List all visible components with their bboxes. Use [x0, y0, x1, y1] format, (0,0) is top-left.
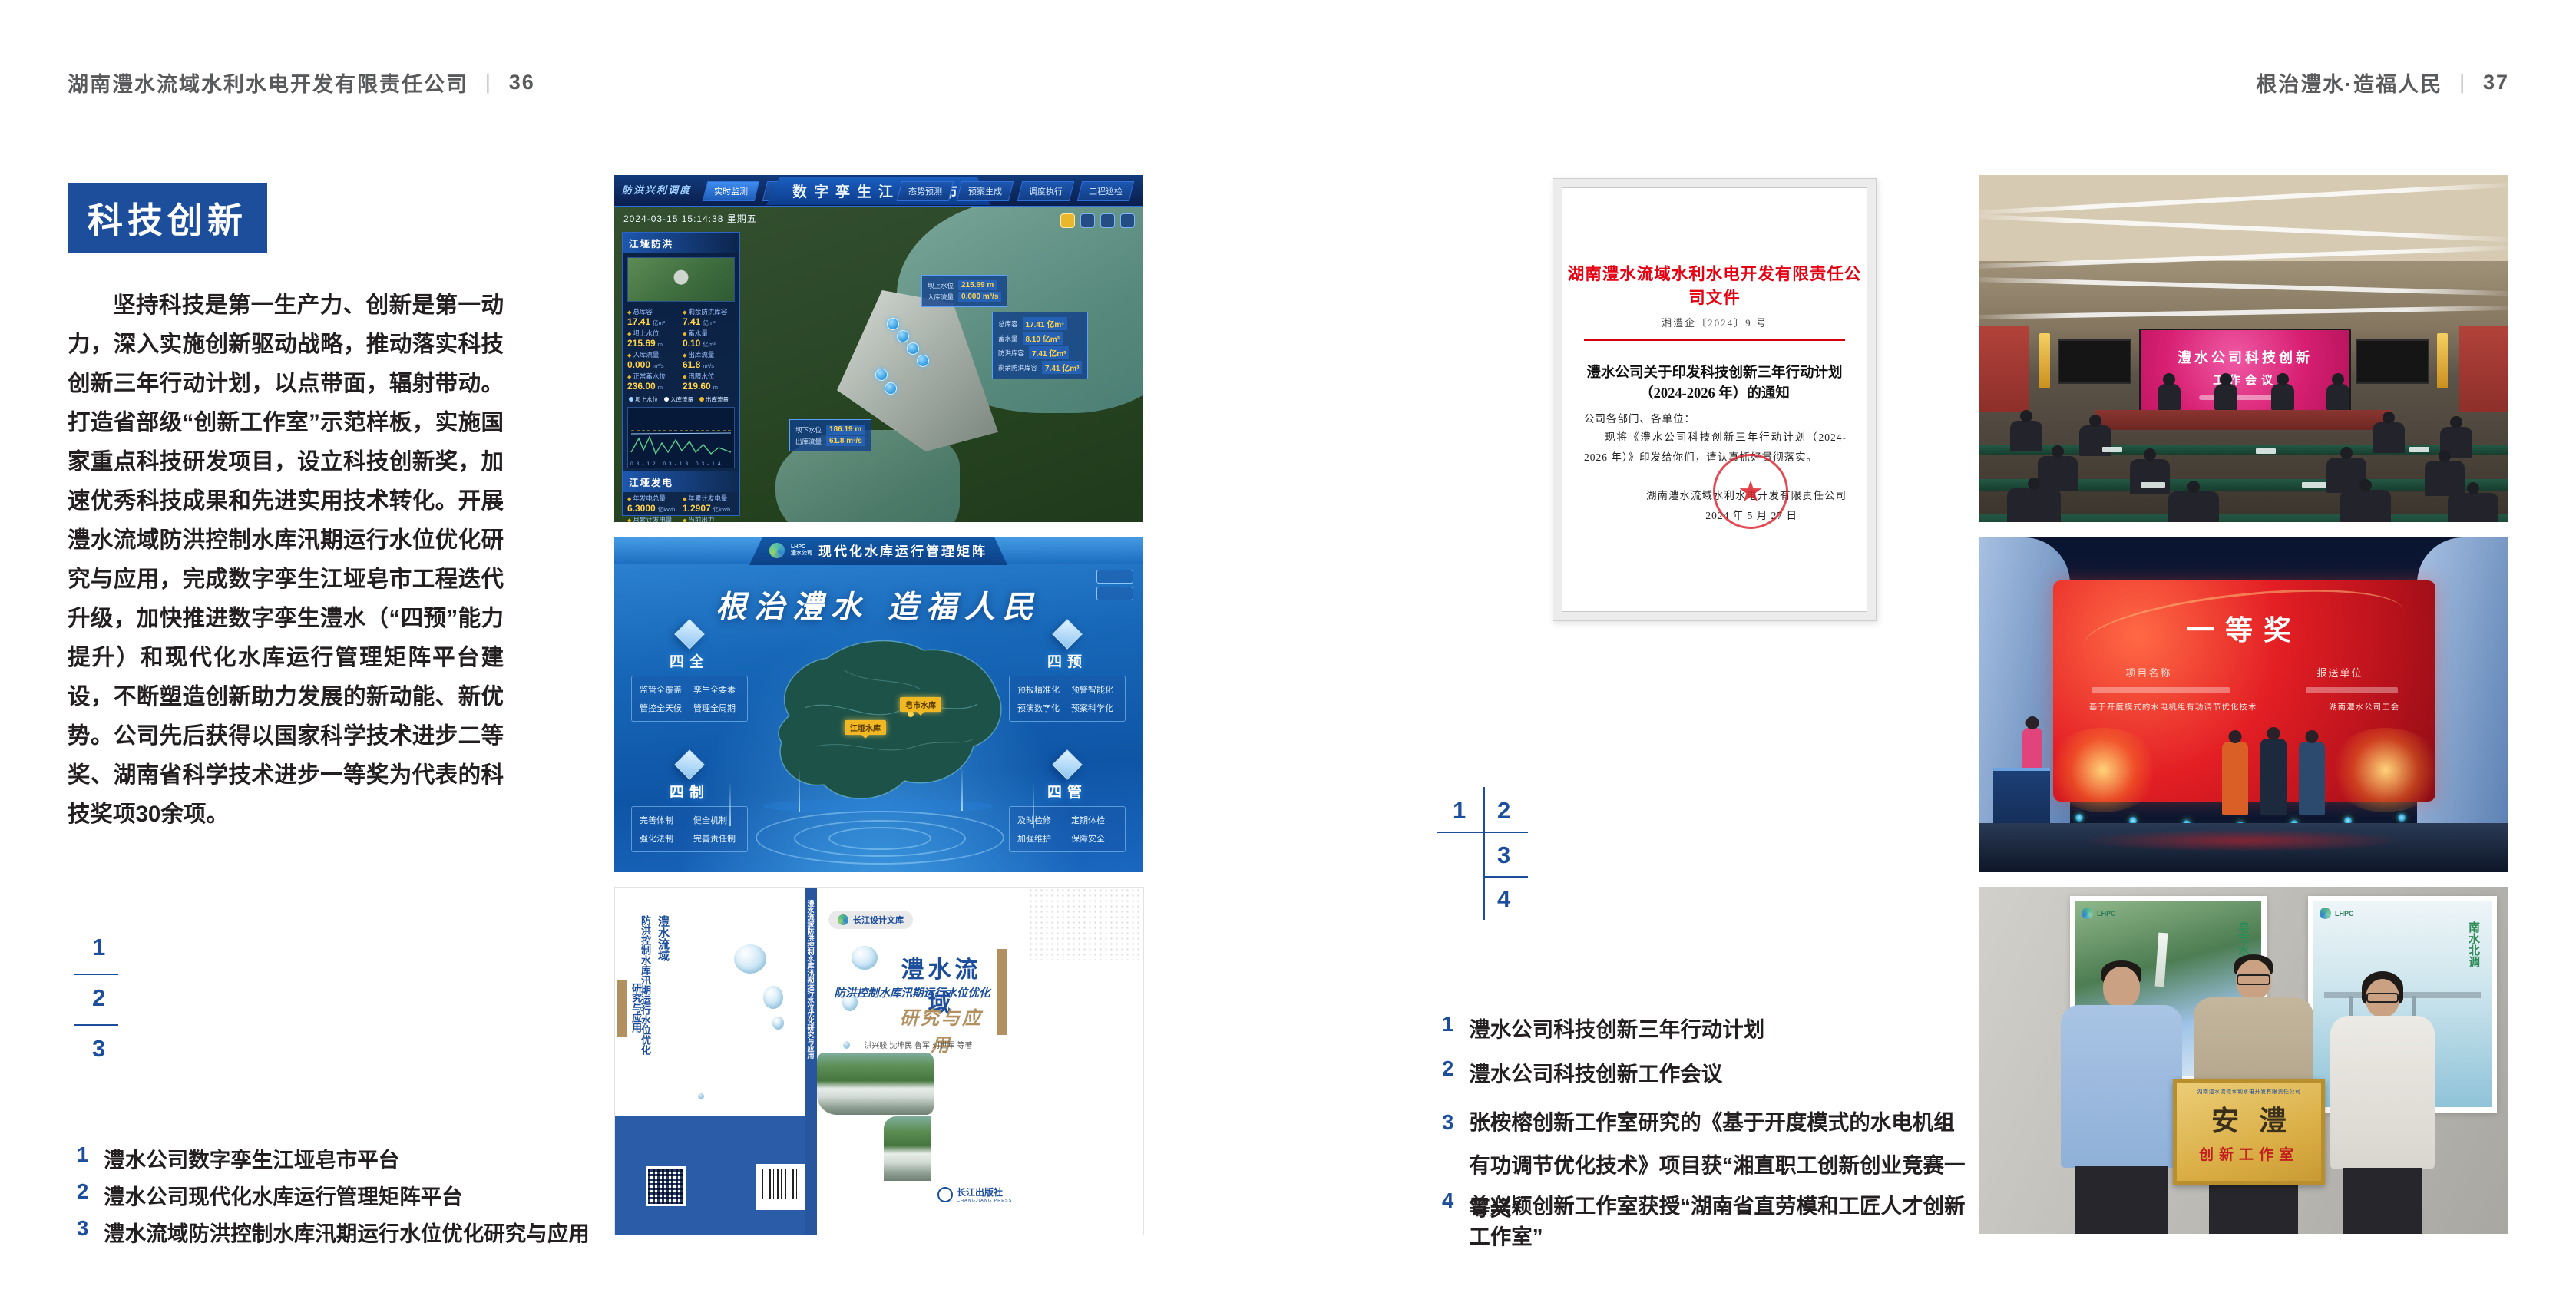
- audience-figure: [2038, 456, 2078, 491]
- audience-figure: [2010, 421, 2042, 451]
- cube-icon: [674, 619, 705, 650]
- gate-pin-icon: [897, 330, 909, 342]
- studio-plaque: 湖南澧水流域水利水电开发有限责任公司 安澧 创新工作室: [2173, 1079, 2325, 1185]
- cover-photo-dam-spillway: [884, 1116, 931, 1181]
- person-right: [2317, 971, 2448, 1234]
- light-pillar: [729, 782, 731, 826]
- lhpc-logo-icon: [2082, 908, 2093, 919]
- audience-figure: [2130, 459, 2170, 494]
- back-title-line2: 防洪控制水库汛期运行水位优化: [638, 915, 653, 1107]
- awardee-figure-orange: [2222, 742, 2248, 815]
- award-row-blur: [2306, 687, 2398, 693]
- lhpc-logo-icon: [2320, 908, 2331, 919]
- caption-number: 2: [1442, 1056, 1453, 1081]
- chart-legend: 坝上水位 入库流量 出库流量: [623, 393, 739, 404]
- left-header-title: 湖南澧水流域水利水电开发有限责任公司: [68, 68, 468, 98]
- caption-item: 1 澧水公司数字孪生江垭皂市平台: [77, 1142, 584, 1173]
- figure-ref-1: 1: [92, 934, 105, 961]
- gate-pin-icon: [875, 369, 888, 381]
- barcode: [756, 1164, 806, 1210]
- screen-reflection: [2082, 829, 2405, 852]
- dam-thumbnail: [627, 257, 735, 302]
- document-paper: 湖南澧水流域水利水电开发有限责任公司文件 湘澧企〔2024〕9 号 澧水公司关于…: [1562, 187, 1867, 612]
- lhpc-logo-icon: [769, 543, 785, 558]
- locate-icon: [1100, 213, 1115, 228]
- glasses-icon: [2366, 993, 2399, 1003]
- photo-innovation-meeting: 澧水公司科技创新 工作会议: [1979, 175, 2508, 522]
- caption-item: 2 澧水公司现代化水库运行管理矩阵平台: [77, 1179, 584, 1210]
- audience-figure: [2373, 422, 2405, 453]
- dashboard-left-panel: 江垭防洪 总库容17.41亿m³ 剩余防洪库容7.41亿m³ 坝上水位215.6…: [622, 232, 740, 516]
- gate-pin-icon: [907, 342, 919, 355]
- lhpc-logo-text: LHPC澧水公司: [791, 544, 812, 557]
- book-subtitle: 防洪控制水库汛期运行水位优化: [832, 984, 993, 1000]
- caption-item: 3 澧水流域防洪控制水库汛期运行水位优化研究与应用: [77, 1216, 599, 1247]
- document-title-line1: 澧水公司关于印发科技创新三年行动计划: [1562, 362, 1867, 382]
- plaque-subtitle: 创新工作室: [2177, 1143, 2321, 1164]
- platform-header: LHPC澧水公司 现代化水库运行管理矩阵: [749, 537, 1007, 565]
- publisher-logo-icon: [937, 1187, 953, 1202]
- caption-number: 1: [1442, 1012, 1453, 1037]
- group-siguan: 四管 及时检修定期体检 加强维护保障安全: [1009, 754, 1126, 852]
- flag-icon: [1052, 619, 1083, 650]
- group-siyu: 四预 预报精准化预警智能化 预演数字化预案科学化: [1009, 623, 1126, 722]
- ring-decoration: [828, 827, 931, 850]
- figure-ref-divider: [1483, 787, 1485, 920]
- lhpc-logo-text: LHPC: [2097, 910, 2116, 918]
- official-seal: ★: [1713, 454, 1788, 529]
- award-row-blur: [2092, 687, 2230, 693]
- tab-plan-generate: 预案生成: [957, 181, 1014, 201]
- cover-photo-dam-valley: [817, 1053, 934, 1115]
- paper-on-desk: [2409, 447, 2429, 452]
- photo-award-ceremony: 一等奖 项目名称 报送单位 基于开度模式的水电机组有功调节优化技术 湖南澧水公司…: [1979, 537, 2508, 872]
- book-spine: 澧水流域防洪控制水库汛期运行水位优化研究与应用: [805, 888, 817, 1235]
- caption-text: 澧水公司数字孪生江垭皂市平台: [104, 1142, 399, 1173]
- spine-title: 澧水流域防洪控制水库汛期运行水位优化研究与应用: [806, 900, 816, 1130]
- stage-glow: [2328, 728, 2443, 812]
- watershed-map: [743, 623, 1014, 814]
- caption-number: 1: [77, 1142, 88, 1167]
- figure-ref-divider: [1483, 876, 1528, 878]
- wall-red-panel: [1979, 326, 2029, 412]
- speaker-figure: [2326, 384, 2349, 410]
- water-level-chart: 03-12 03-13 03-14: [627, 407, 735, 468]
- paper-on-desk: [2256, 448, 2276, 454]
- light-pillar: [1033, 783, 1034, 828]
- stage-glow: [2045, 728, 2161, 812]
- publisher-name: 长江出版社: [957, 1185, 1012, 1199]
- presenter-figure: [2260, 739, 2287, 815]
- tab-realtime-monitor: 实时监测: [703, 181, 759, 201]
- rostrum-desk: [2095, 410, 2392, 430]
- caption-text: 曾兴颖创新工作室获授“湖南省直劳模和工匠人才创新工作室”: [1469, 1189, 1972, 1250]
- water-drop: [772, 1017, 784, 1030]
- platform-title: 现代化水库运行管理矩阵: [818, 541, 987, 560]
- awardee-figure-blue: [2299, 742, 2325, 815]
- left-page-number: 36: [509, 71, 535, 94]
- caption-item: 2 澧水公司科技创新工作会议: [1442, 1056, 1972, 1087]
- callout-upstream: 坝上水位215.69 m 入库流量0.000 m³/s: [921, 275, 1007, 307]
- document-number: 湘澧企〔2024〕9 号: [1562, 315, 1867, 329]
- user-icon: [1060, 213, 1075, 228]
- caption-number: 4: [1442, 1189, 1453, 1213]
- map-label-zaoshi: 皂市水库: [900, 697, 941, 712]
- halftone-pattern: [1028, 888, 1143, 960]
- figure-ref-2: 2: [1497, 797, 1510, 825]
- left-header-divider: |: [485, 71, 492, 94]
- group-siquan: 四全 监管全覆盖孪生全要素 管控全天候管理全周期: [631, 623, 748, 722]
- wall-sconce: [2039, 333, 2050, 388]
- award-unit-name: 湖南澧水公司工会: [2329, 701, 2399, 713]
- wall-tv: [2356, 339, 2429, 384]
- panel-title-flood: 江垭防洪: [623, 233, 739, 253]
- flood-stats-grid: 总库容17.41亿m³ 剩余防洪库容7.41亿m³ 坝上水位215.69m 蓄水…: [623, 306, 739, 393]
- paper-on-desk: [2141, 482, 2165, 488]
- seal-star-icon: ★: [1738, 474, 1764, 509]
- series-badge: 长江设计文库: [828, 911, 913, 929]
- caption-item: 1 澧水公司科技创新三年行动计划: [1442, 1012, 1972, 1043]
- gate-pin-icon: [885, 382, 897, 395]
- speaker-figure: [2158, 384, 2181, 410]
- ceiling-light: [1979, 277, 2508, 296]
- document-body: 现将《澧水公司科技创新三年行动计划（2024-2026 年）》印发给你们，请认真…: [1584, 428, 1847, 468]
- callout-downstream: 坝下水位186.19 m 出库流量61.8 m³/s: [789, 419, 871, 451]
- map-label-jiangya: 江垭水库: [845, 720, 886, 735]
- speaker-figure: [2214, 384, 2237, 410]
- caption-text: 澧水公司现代化水库运行管理矩阵平台: [104, 1179, 463, 1210]
- audience-figure: [2425, 461, 2465, 496]
- caption-text: 澧水公司科技创新工作会议: [1469, 1056, 1722, 1087]
- figure-management-platform: LHPC澧水公司 现代化水库运行管理矩阵 根治澧水 造福人民 皂市水库 江垭水库…: [614, 537, 1143, 872]
- figure-book-cover: 研究与应用 澧水流域 防洪控制水库汛期运行水位优化 澧水流域防洪控制水库汛期运行…: [614, 887, 1144, 1235]
- photo-studio-plaque: LHPC 皂市水库 LHPC 南水北调: [1979, 887, 2508, 1234]
- document-salutation: 公司各部门、各单位：: [1584, 409, 1695, 429]
- wall-sconce: [2437, 333, 2448, 388]
- document-title-line2: （2024-2026 年）的通知: [1562, 382, 1867, 402]
- screen-swirl-decoration: [2081, 577, 2407, 679]
- publisher-logo: 长江出版社 CHANGJIANG PRESS: [937, 1185, 1012, 1203]
- figure-ref-3: 3: [1497, 841, 1510, 869]
- award-col-unit: 报送单位: [2316, 665, 2363, 679]
- ceiling-light: [1979, 306, 2508, 320]
- right-page-header: 根治澧水·造福人民 | 37: [2256, 68, 2509, 98]
- document-red-rule: [1584, 339, 1845, 341]
- back-title-line1: 澧水流域: [655, 915, 671, 1092]
- section-badge: 科技创新: [68, 183, 267, 253]
- figure-ref-4: 4: [1497, 885, 1510, 913]
- dashboard-datetime: 2024-03-15 15:14:38 星期五: [623, 212, 757, 225]
- dashboard-corner-label: 防洪兴利调度: [622, 182, 691, 197]
- tab-situation-forecast: 态势预测: [896, 181, 953, 201]
- document-letterhead: 湖南澧水流域水利水电开发有限责任公司文件: [1562, 261, 1867, 309]
- building-icon: [674, 749, 705, 780]
- water-drop: [852, 946, 878, 970]
- award-col-project: 项目名称: [2125, 665, 2171, 679]
- back-tan-block: [617, 980, 627, 1037]
- figure-ref-divider: [74, 974, 118, 975]
- light-pillar: [799, 768, 800, 812]
- wall-tv: [2058, 339, 2131, 384]
- water-drop: [734, 944, 766, 974]
- audience-figure: [2340, 490, 2391, 522]
- right-header-divider: |: [2459, 71, 2466, 94]
- light-pillar: [961, 766, 963, 811]
- caption-number: 3: [1442, 1101, 1453, 1144]
- glasses-icon: [2237, 974, 2270, 985]
- section-body-text: 坚持科技是第一生产力、创新是第一动力，深入实施创新驱动战略，推动落实科技创新三年…: [68, 286, 504, 834]
- power-stats-grid: 年发电总量6.3000亿kWh 年累计发电量1.2907亿kWh 月累计发电量3…: [623, 492, 739, 522]
- reflective-floor: [1979, 823, 2508, 872]
- figure-ref-divider: [74, 1024, 118, 1026]
- book-authors: 洪兴骏 沈坤民 鲁军 刘世军 等著: [845, 1039, 991, 1050]
- figure-digital-twin-dashboard: 防洪兴利调度 实时监测 洪水预报 防汛预警 数字孪生江垭皂市 态势预测 预案生成…: [614, 175, 1143, 522]
- tab-dispatch-execute: 调度执行: [1017, 181, 1073, 201]
- layers-icon: [1080, 213, 1095, 228]
- lhpc-logo-text: LHPC: [2335, 910, 2354, 918]
- gate-pin-icon: [887, 318, 899, 330]
- speaker-figure: [2271, 384, 2294, 410]
- press-logo-icon: [838, 914, 848, 925]
- audience-figure: [2007, 488, 2061, 522]
- plaque-name: 安澧: [2177, 1099, 2321, 1139]
- poster-right-title: 南水北调: [2466, 921, 2482, 967]
- paper-on-desk: [2302, 482, 2326, 488]
- award-project-name: 基于开度模式的水电机组有功调节优化技术: [2089, 701, 2257, 713]
- caption-number: 2: [77, 1179, 88, 1204]
- audience-figure: [2168, 491, 2219, 522]
- right-header-title: 根治澧水·造福人民: [2256, 68, 2442, 98]
- caption-text: 澧水流域防洪控制水库汛期运行水位优化研究与应用: [104, 1216, 590, 1247]
- audience-figure: [2448, 493, 2498, 522]
- tab-project-inspect: 工程巡检: [1077, 181, 1134, 201]
- callout-storage: 总库容17.41 亿m³ 蓄水量8.10 亿m³ 防洪库容7.41 亿m³ 剩余…: [992, 312, 1088, 379]
- settings-icon: [1120, 213, 1135, 228]
- meeting-screen-line1: 澧水公司科技创新: [2141, 347, 2349, 367]
- dashboard-tabs-right: 态势预测 预案生成 调度执行 工程巡检: [899, 181, 1136, 201]
- qr-code: [646, 1166, 686, 1206]
- publisher-name-en: CHANGJIANG PRESS: [957, 1199, 1012, 1203]
- figure-official-document: 湖南澧水流域水利水电开发有限责任公司文件 湘澧企〔2024〕9 号 澧水公司关于…: [1553, 178, 1877, 621]
- caption-number: 3: [77, 1216, 88, 1241]
- dashboard-app-icons: [1060, 213, 1135, 228]
- figure-ref-3: 3: [92, 1035, 105, 1063]
- left-page-header: 湖南澧水流域水利水电开发有限责任公司 | 36: [68, 68, 535, 98]
- figure-ref-1: 1: [1453, 797, 1466, 825]
- brochure-spread: 湖南澧水流域水利水电开发有限责任公司 | 36 科技创新 坚持科技是第一生产力、…: [0, 0, 2576, 1306]
- caption-text: 澧水公司科技创新三年行动计划: [1469, 1012, 1764, 1043]
- water-drop: [763, 986, 783, 1009]
- radar-icon: [1052, 749, 1083, 780]
- gate-pin-icon: [917, 355, 929, 367]
- wall-red-panel: [2459, 326, 2508, 412]
- series-badge-text: 长江设计文库: [853, 914, 904, 926]
- platform-slogan: 根治澧水 造福人民: [614, 582, 1143, 627]
- figure-ref-2: 2: [92, 984, 105, 1012]
- paper-on-desk: [2102, 447, 2122, 452]
- front-tan-accent: [997, 949, 1007, 1035]
- plaque-org-line: 湖南澧水流域水利水电开发有限责任公司: [2177, 1088, 2321, 1096]
- water-drop: [698, 1093, 704, 1099]
- chart-x-ticks: 03-12 03-13 03-14: [630, 461, 724, 467]
- caption-item: 4 曾兴颖创新工作室获授“湖南省直劳模和工匠人才创新工作室”: [1442, 1189, 1972, 1250]
- figure-ref-divider: [1437, 832, 1528, 833]
- right-page-number: 37: [2483, 71, 2509, 94]
- panel-title-power: 江垭发电: [623, 471, 739, 492]
